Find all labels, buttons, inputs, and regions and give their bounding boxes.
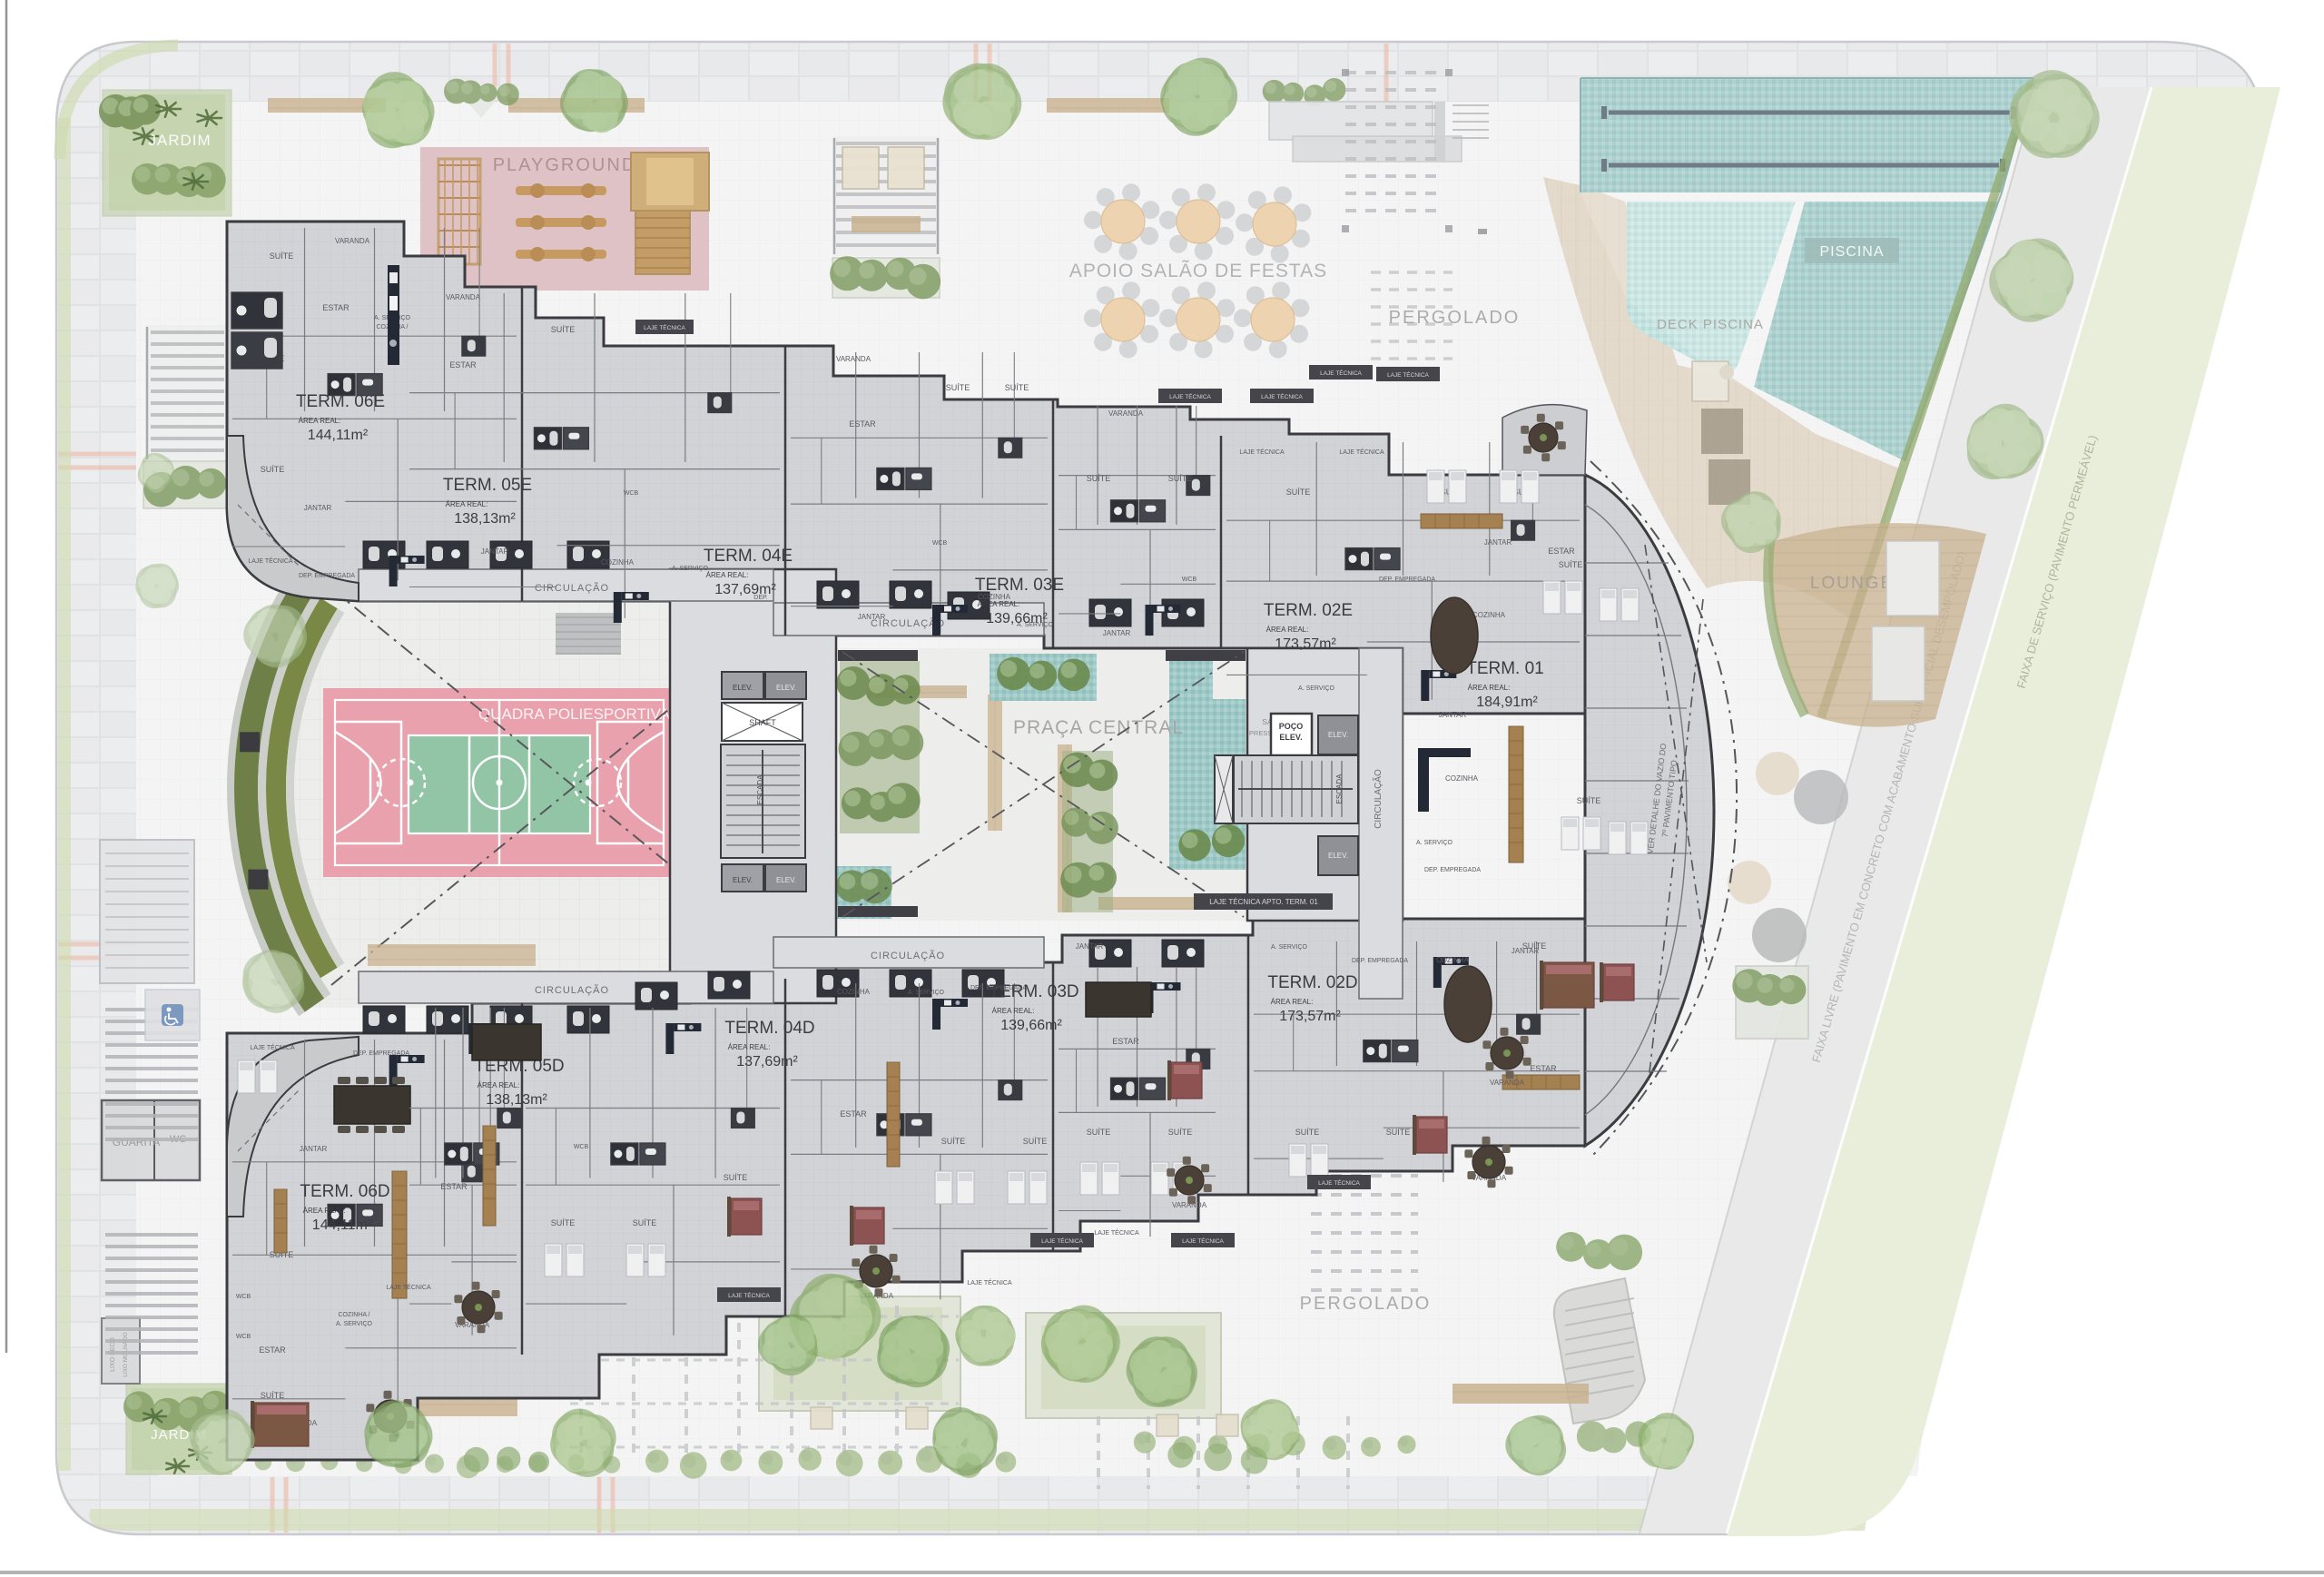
svg-text:ESTAR: ESTAR [449, 360, 477, 370]
svg-text:JANTAR: JANTAR [304, 504, 332, 512]
svg-text:ELEV.: ELEV. [1328, 852, 1348, 860]
svg-text:SUÍTE: SUÍTE [941, 1137, 966, 1146]
svg-text:TERM. 02D: TERM. 02D [1267, 973, 1357, 992]
svg-text:ÁREA REAL:: ÁREA REAL: [303, 1207, 346, 1215]
svg-text:144,11m²: 144,11m² [312, 1217, 373, 1233]
svg-text:JANTAR: JANTAR [1076, 942, 1104, 951]
svg-text:DEP. EMPREGADA: DEP. EMPREGADA [299, 573, 355, 579]
svg-text:SUÍTE: SUÍTE [1286, 488, 1311, 497]
svg-text:VARANDA: VARANDA [1490, 1079, 1525, 1087]
svg-text:DEP. EMPREGADA: DEP. EMPREGADA [1424, 867, 1481, 873]
svg-text:ESCADA: ESCADA [1335, 774, 1344, 804]
svg-text:JANTAR: JANTAR [300, 1145, 328, 1153]
svg-text:SUÍTE: SUÍTE [1295, 1128, 1320, 1137]
svg-text:LAJE TÉCNICA: LAJE TÉCNICA [1318, 1178, 1360, 1187]
svg-text:ELEV.: ELEV. [1279, 733, 1302, 742]
svg-text:LAJE TÉCNICA: LAJE TÉCNICA [250, 1043, 295, 1051]
svg-text:SUÍTE: SUÍTE [1005, 383, 1029, 392]
svg-text:SUÍTE: SUÍTE [270, 251, 294, 261]
svg-text:137,69m²: 137,69m² [736, 1054, 798, 1069]
svg-text:JANTAR: JANTAR [481, 547, 509, 556]
svg-text:139,66m²: 139,66m² [1000, 1018, 1062, 1033]
svg-text:A. SERVIÇO: A. SERVIÇO [672, 566, 708, 572]
svg-text:LAJE TÉCNICA: LAJE TÉCNICA [248, 557, 293, 565]
svg-text:LAJE TÉCNICA: LAJE TÉCNICA [1339, 448, 1384, 456]
svg-text:TERM. 06D: TERM. 06D [300, 1182, 389, 1201]
svg-text:TERM. 06E: TERM. 06E [296, 392, 385, 411]
svg-text:ESTAR: ESTAR [1530, 1064, 1557, 1073]
svg-text:137,69m²: 137,69m² [714, 582, 776, 597]
svg-text:SHAFT: SHAFT [749, 718, 776, 727]
svg-text:ESTAR: ESTAR [849, 419, 876, 429]
svg-text:APOIO SALÃO DE FESTAS: APOIO SALÃO DE FESTAS [1069, 260, 1327, 281]
svg-text:SUÍTE: SUÍTE [946, 383, 970, 392]
svg-text:LAJE TÉCNICA: LAJE TÉCNICA [644, 323, 685, 331]
svg-text:SUÍTE: SUÍTE [1168, 1128, 1193, 1137]
svg-text:ÁREA REAL:: ÁREA REAL: [978, 600, 1020, 608]
svg-text:LAJE TÉCNICA: LAJE TÉCNICA [728, 1291, 770, 1299]
svg-text:LAJE TÉCNICA: LAJE TÉCNICA [1239, 448, 1285, 456]
svg-text:JANTAR: JANTAR [1439, 711, 1467, 719]
svg-text:LOUNGE: LOUNGE [1810, 574, 1894, 593]
svg-text:COZINHA: COZINHA [1445, 774, 1479, 783]
svg-text:ELEV.: ELEV. [733, 876, 753, 884]
svg-text:DEP. EMPREGADA: DEP. EMPREGADA [353, 1050, 409, 1057]
svg-text:A. SERVIÇO: A. SERVIÇO [1271, 944, 1307, 951]
svg-text:CIRCULAÇÃO: CIRCULAÇÃO [535, 984, 609, 996]
svg-text:ÁREA REAL:: ÁREA REAL: [992, 1007, 1035, 1015]
svg-text:ÁREA REAL:: ÁREA REAL: [1468, 684, 1511, 692]
svg-text:COZINHA: COZINHA [837, 988, 871, 996]
svg-text:139,66m²: 139,66m² [986, 611, 1048, 626]
svg-text:SUÍTE: SUÍTE [633, 1218, 657, 1227]
svg-text:TERM. 03D: TERM. 03D [989, 982, 1078, 1001]
svg-text:WCB: WCB [624, 490, 639, 497]
svg-text:TERM. 01: TERM. 01 [1466, 659, 1544, 678]
svg-text:173,57m²: 173,57m² [1275, 636, 1336, 652]
svg-text:DEP. EMPREGADA: DEP. EMPREGADA [1352, 958, 1408, 964]
svg-text:WCB: WCB [932, 540, 948, 547]
svg-text:LAJE TÉCNICA: LAJE TÉCNICA [1182, 1237, 1224, 1245]
svg-text:LAJE TÉCNICA: LAJE TÉCNICA [1041, 1237, 1083, 1245]
svg-text:CIRCULAÇÃO: CIRCULAÇÃO [535, 582, 609, 594]
svg-text:ÁREA REAL:: ÁREA REAL: [1271, 998, 1314, 1006]
svg-text:SUÍTE: SUÍTE [1386, 1128, 1411, 1137]
svg-text:VARANDA: VARANDA [1108, 409, 1144, 418]
svg-text:CIRCULAÇÃO: CIRCULAÇÃO [871, 950, 945, 961]
svg-text:VARANDA: VARANDA [836, 355, 871, 363]
svg-text:SUÍTE: SUÍTE [1087, 474, 1111, 483]
svg-text:COZINHA /: COZINHA / [338, 1312, 369, 1318]
svg-text:A. SERVIÇO: A. SERVIÇO [1416, 840, 1452, 846]
svg-text:PISCINA: PISCINA [1819, 244, 1884, 260]
svg-text:LAJE TÉCNICA: LAJE TÉCNICA [1387, 370, 1429, 379]
svg-text:VARANDA: VARANDA [335, 237, 370, 245]
svg-text:SUÍTE: SUÍTE [1087, 1128, 1111, 1137]
svg-text:ESCADA: ESCADA [756, 774, 764, 805]
svg-text:WCB: WCB [236, 1294, 251, 1300]
svg-text:A. SERVIÇO: A. SERVIÇO [1298, 685, 1334, 692]
svg-text:ESTAR: ESTAR [1548, 547, 1575, 556]
svg-text:TERM. 05E: TERM. 05E [443, 476, 532, 495]
svg-text:ELEV.: ELEV. [733, 684, 753, 692]
svg-text:LAJE TÉCNICA: LAJE TÉCNICA [1094, 1228, 1139, 1237]
svg-text:COZINHA: COZINHA [1472, 611, 1506, 619]
svg-text:SUÍTE: SUÍTE [551, 325, 576, 334]
svg-text:ELEV.: ELEV. [776, 684, 796, 692]
svg-text:ESTAR: ESTAR [840, 1109, 867, 1119]
svg-text:WCB: WCB [236, 1334, 251, 1340]
svg-text:LAJE TÉCNICA: LAJE TÉCNICA [1320, 369, 1362, 377]
svg-text:SUÍTE: SUÍTE [551, 1218, 576, 1227]
svg-text:ÁREA REAL:: ÁREA REAL: [728, 1043, 771, 1051]
svg-text:ÁREA REAL:: ÁREA REAL: [478, 1081, 520, 1089]
svg-text:JANTAR: JANTAR [858, 613, 886, 621]
svg-text:SUÍTE: SUÍTE [1522, 941, 1547, 951]
svg-text:LAJE TÉCNICA: LAJE TÉCNICA [1169, 392, 1211, 400]
svg-text:SUÍTE: SUÍTE [261, 1391, 285, 1400]
svg-text:ÁREA REAL:: ÁREA REAL: [299, 417, 341, 425]
svg-text:SUÍTE: SUÍTE [1577, 796, 1601, 805]
svg-text:TERM. 02E: TERM. 02E [1264, 601, 1353, 620]
svg-text:SUÍTE: SUÍTE [1168, 474, 1193, 483]
svg-text:LAJE TÉCNICA: LAJE TÉCNICA [1261, 392, 1303, 400]
svg-text:ESTAR: ESTAR [322, 303, 350, 312]
svg-text:JANTAR: JANTAR [1484, 538, 1512, 547]
svg-text:DEP. EMPREGADA: DEP. EMPREGADA [1379, 577, 1435, 583]
svg-text:SUÍTE: SUÍTE [1023, 1137, 1048, 1146]
svg-text:PLAYGROUND: PLAYGROUND [493, 155, 637, 175]
svg-text:TERM. 04D: TERM. 04D [724, 1019, 814, 1038]
svg-text:SUÍTE: SUÍTE [724, 1173, 748, 1182]
svg-text:WCB: WCB [574, 1144, 589, 1150]
svg-text:QUADRA POLIESPORTIVA: QUADRA POLIESPORTIVA [478, 705, 671, 723]
svg-text:A. SERVIÇO: A. SERVIÇO [336, 1321, 372, 1327]
svg-text:144,11m²: 144,11m² [308, 428, 369, 443]
svg-text:COZINHA: COZINHA [1436, 956, 1470, 964]
svg-text:WCB: WCB [1182, 577, 1197, 583]
svg-text:LAJE TÉCNICA APTO. TERM. 01: LAJE TÉCNICA APTO. TERM. 01 [1209, 898, 1318, 906]
svg-text:COZINHA: COZINHA [601, 558, 635, 567]
svg-text:ELEV.: ELEV. [1328, 731, 1348, 739]
svg-text:138,13m²: 138,13m² [454, 511, 516, 527]
svg-text:ÁREA REAL:: ÁREA REAL: [446, 500, 488, 508]
svg-text:173,57m²: 173,57m² [1279, 1009, 1341, 1024]
svg-text:ESTAR: ESTAR [440, 1182, 468, 1191]
svg-text:DECK PISCINA: DECK PISCINA [1657, 317, 1764, 332]
svg-text:A. SERVIÇO: A. SERVIÇO [908, 990, 944, 996]
svg-text:ÁREA REAL:: ÁREA REAL: [706, 571, 749, 579]
svg-text:JANTAR: JANTAR [1103, 629, 1131, 637]
svg-text:PERGOLADO: PERGOLADO [1300, 1294, 1432, 1314]
svg-text:JARDIM: JARDIM [148, 132, 211, 149]
svg-text:LAJE TÉCNICA: LAJE TÉCNICA [386, 1283, 431, 1291]
svg-text:ESTAR: ESTAR [259, 1345, 286, 1355]
svg-text:ELEV.: ELEV. [776, 876, 796, 884]
svg-text:SUÍTE: SUÍTE [1559, 560, 1583, 569]
svg-text:PRAÇA CENTRAL: PRAÇA CENTRAL [1013, 717, 1184, 738]
svg-text:VARANDA: VARANDA [446, 293, 481, 301]
svg-text:TERM. 04E: TERM. 04E [704, 547, 793, 566]
svg-text:POÇO: POÇO [1279, 722, 1304, 731]
svg-text:CIRCULAÇÃO: CIRCULAÇÃO [1372, 769, 1384, 829]
svg-text:PERGOLADO: PERGOLADO [1389, 308, 1521, 328]
svg-text:ÁREA REAL:: ÁREA REAL: [1266, 626, 1309, 634]
svg-text:SUÍTE: SUÍTE [261, 465, 285, 474]
svg-text:ESTAR: ESTAR [1112, 1037, 1139, 1046]
svg-text:LAJE TÉCNICA: LAJE TÉCNICA [967, 1278, 1012, 1286]
svg-text:138,13m²: 138,13m² [486, 1092, 547, 1108]
svg-text:184,91m²: 184,91m² [1476, 695, 1538, 710]
svg-text:TERM. 03E: TERM. 03E [975, 576, 1064, 595]
